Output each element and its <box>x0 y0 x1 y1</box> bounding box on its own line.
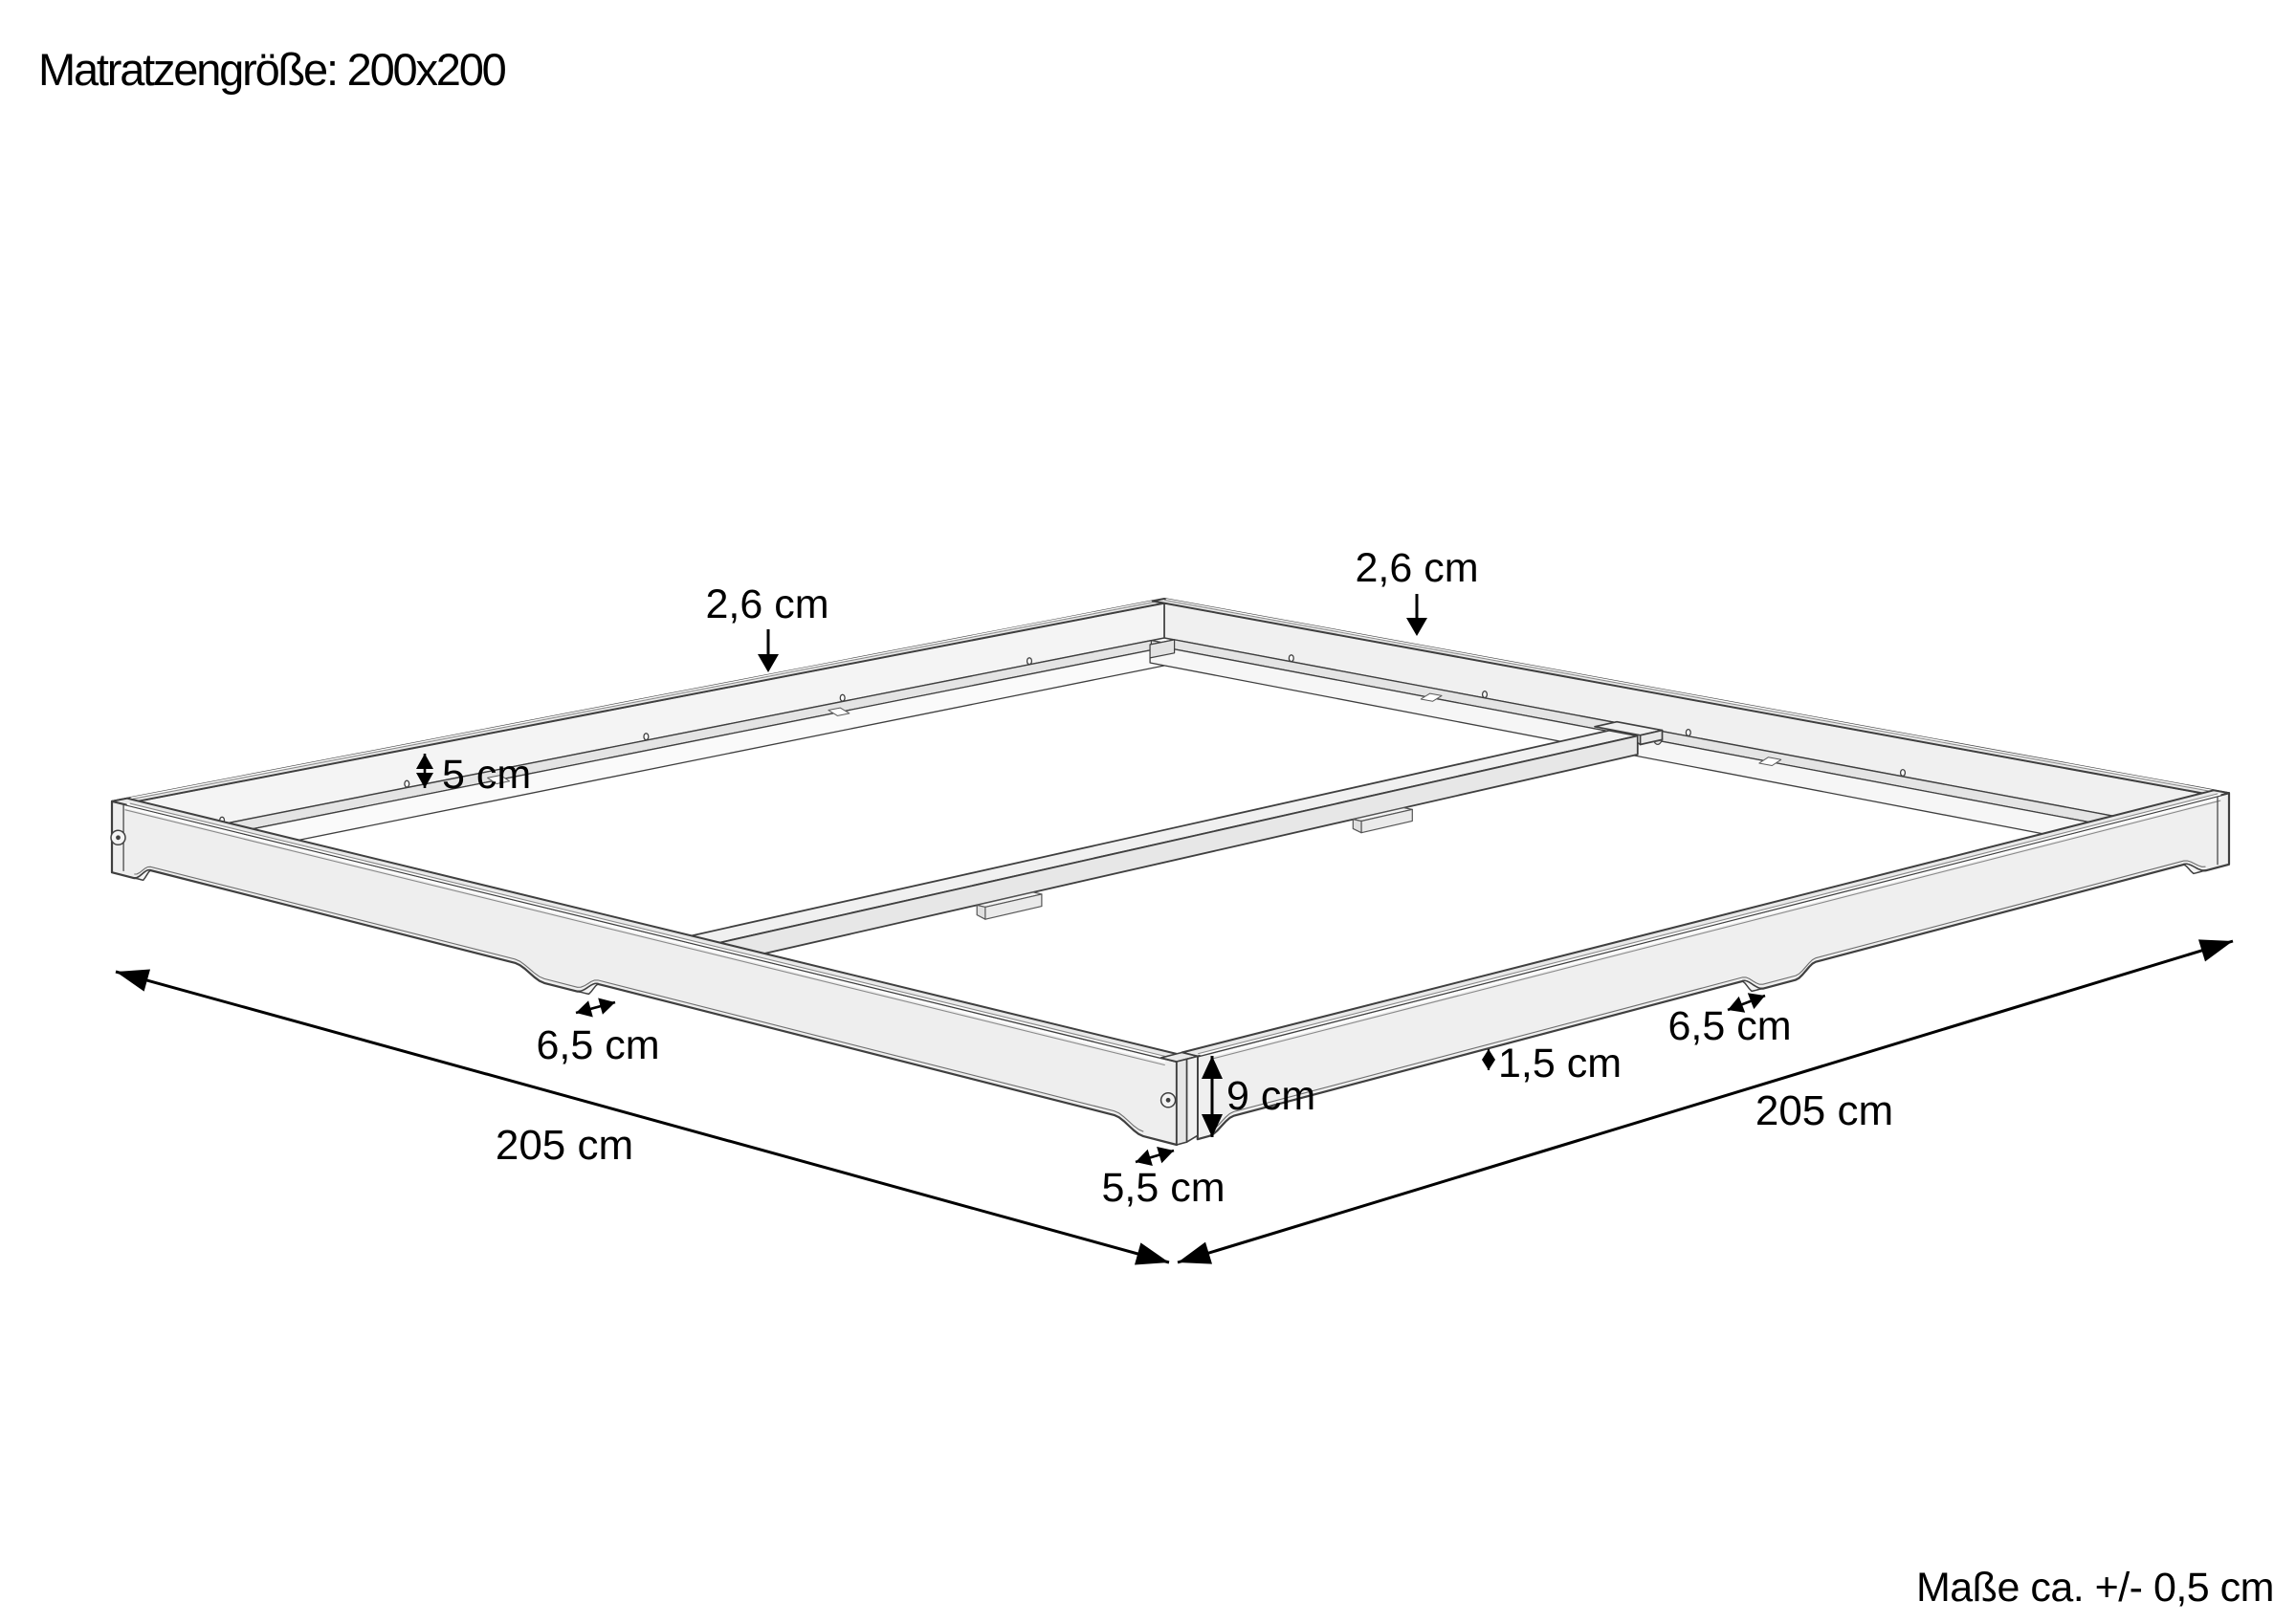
svg-text:Matratzengröße: 200x200: Matratzengröße: 200x200 <box>38 44 506 95</box>
svg-text:9 cm: 9 cm <box>1226 1073 1315 1119</box>
svg-text:6,5 cm: 6,5 cm <box>536 1022 659 1068</box>
svg-text:5,5 cm: 5,5 cm <box>1101 1165 1225 1211</box>
svg-text:6,5 cm: 6,5 cm <box>1667 1003 1791 1049</box>
svg-text:205 cm: 205 cm <box>1755 1087 1893 1134</box>
svg-text:1,5 cm: 1,5 cm <box>1498 1041 1622 1086</box>
svg-text:2,6 cm: 2,6 cm <box>705 581 828 627</box>
svg-text:205 cm: 205 cm <box>496 1122 633 1169</box>
svg-text:5 cm: 5 cm <box>442 752 531 798</box>
svg-text:2,6 cm: 2,6 cm <box>1355 545 1478 591</box>
svg-text:Maße ca. +/- 0,5 cm: Maße ca. +/- 0,5 cm <box>1916 1565 2274 1611</box>
